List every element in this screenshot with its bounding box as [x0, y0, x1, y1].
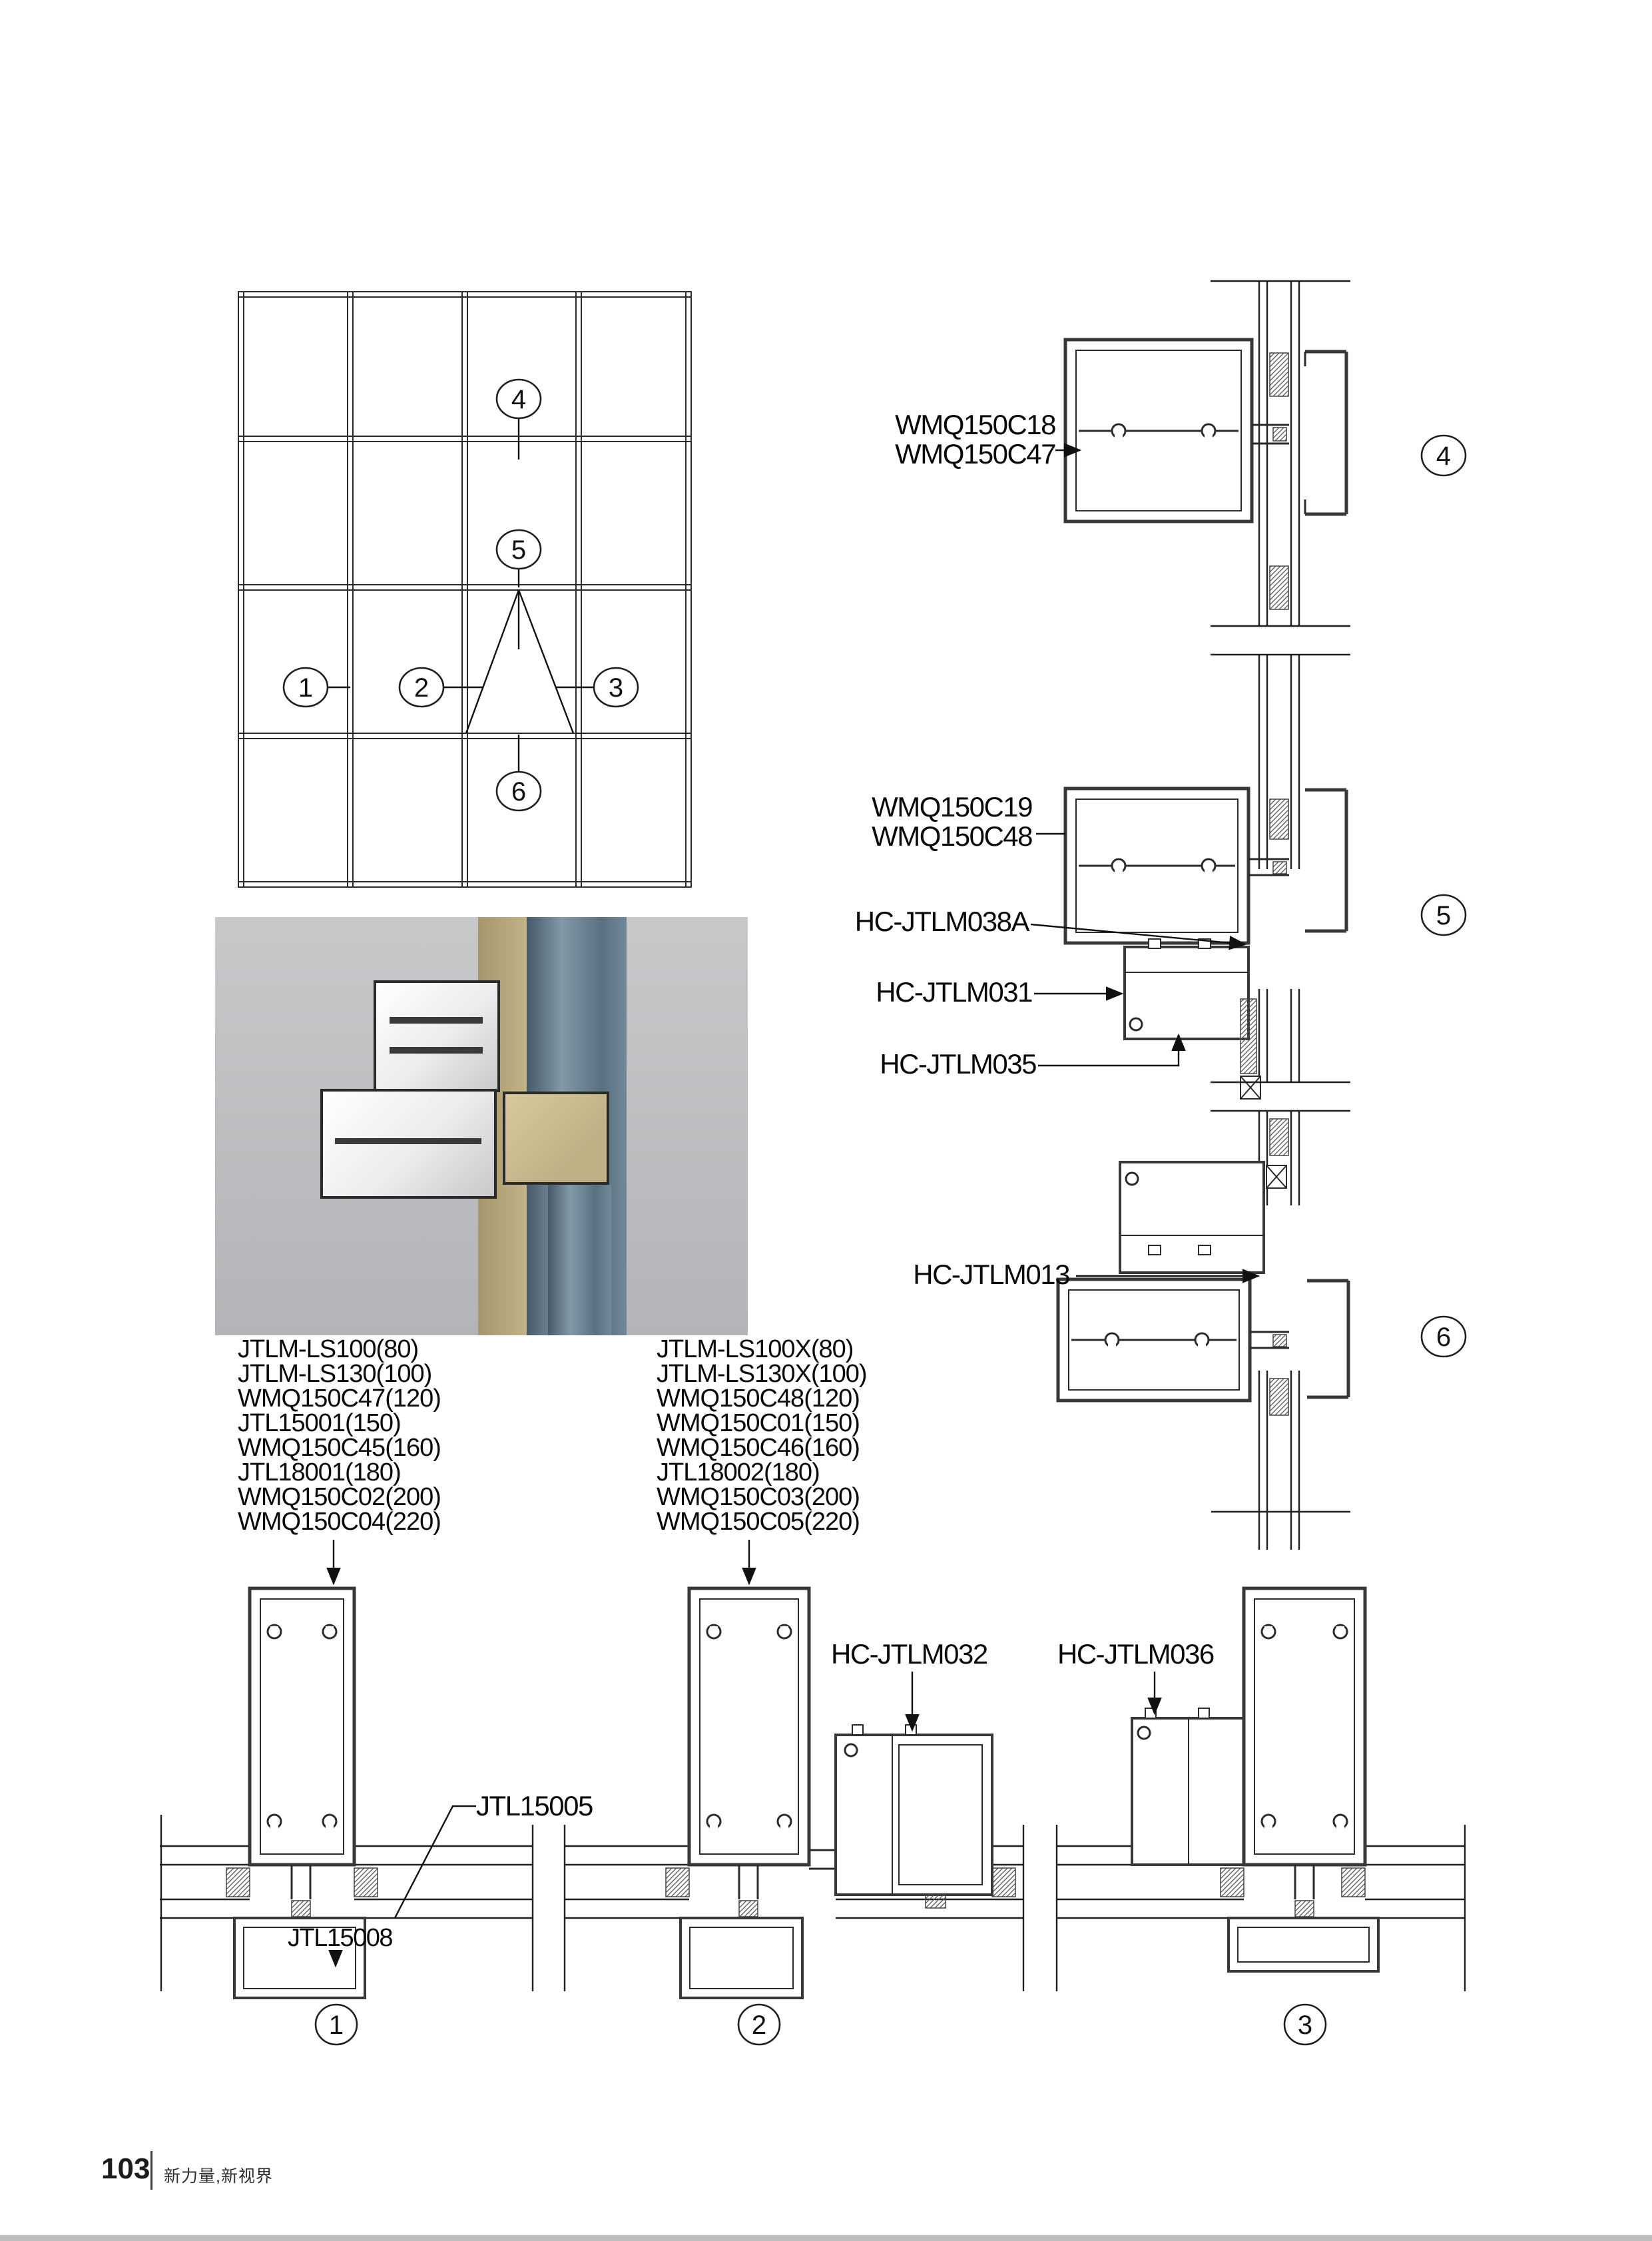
vent-frame-profile: [1120, 1162, 1286, 1273]
parts-list-item: WMQ150C01(150): [657, 1411, 867, 1436]
label-jtl15008: JTL15008: [288, 1923, 392, 1953]
parts-list-item: JTL15001(150): [238, 1411, 441, 1436]
parts-list-item: JTLM-LS100(80): [238, 1337, 441, 1362]
render-glass-lower: [548, 1185, 611, 1335]
bottom-cover-profile: [1229, 1918, 1378, 1971]
glass-unit: [1259, 281, 1299, 626]
render-profile-slot: [390, 1047, 483, 1054]
parts-list-item: WMQ150C48(120): [657, 1387, 867, 1411]
page-edge-bar: [0, 2235, 1652, 2241]
elevation-grid: [238, 292, 691, 887]
render-profile-web: [335, 1138, 481, 1144]
transom-profile: [1065, 789, 1289, 943]
leader-jtl15005: [395, 1806, 476, 1918]
footer-divider: [150, 2151, 152, 2190]
label-jtl15005: JTL15005: [476, 1791, 593, 1821]
label-hc-jtlm032: HC-JTLM032: [831, 1640, 987, 1669]
glass-unit-lower: [1259, 1371, 1299, 1550]
section-callout-5: 5: [1422, 895, 1466, 935]
vent-frame-profile: [1132, 1708, 1245, 1865]
section-callout-2: 2: [738, 2005, 780, 2045]
elevation-callout-leaders: [328, 418, 594, 772]
label-hc-jtlm038a: HC-JTLM038A: [786, 907, 1029, 936]
vertical-sections-drawing: 4: [1019, 273, 1518, 1558]
section-callout-4: 4: [1422, 436, 1466, 476]
svg-text:6: 6: [1436, 1323, 1451, 1352]
transom-profile: [1065, 340, 1289, 521]
vent-opening-symbol: [466, 590, 573, 733]
svg-text:2: 2: [414, 673, 429, 703]
cover-cap-profile: [1307, 1281, 1348, 1397]
parts-list-item: WMQ150C46(160): [657, 1436, 867, 1460]
label-wmq150c19: WMQ150C19 WMQ150C48: [832, 793, 1032, 851]
svg-text:1: 1: [329, 2011, 344, 2040]
callout-circle-2: 2: [400, 668, 443, 707]
cover-cap-profile: [1305, 790, 1346, 931]
section-6-detail: [1058, 1111, 1350, 1550]
label-hc-jtlm035: HC-JTLM035: [796, 1050, 1036, 1079]
horizontal-sections-drawing: 1 2 3: [160, 1532, 1492, 2051]
svg-text:6: 6: [511, 777, 526, 806]
svg-text:5: 5: [1436, 901, 1451, 930]
callout-circle-1: 1: [284, 668, 328, 707]
callout-circle-6: 6: [497, 772, 541, 810]
parts-list-item: JTL18002(180): [657, 1460, 867, 1485]
callout-circle-5: 5: [497, 530, 541, 569]
parts-list-item: WMQ150C47(120): [238, 1387, 441, 1411]
page-number: 103: [101, 2152, 150, 2186]
vent-frame-profile: [1125, 939, 1248, 1039]
parts-list-item: WMQ150C04(220): [238, 1510, 441, 1534]
parts-list-item: JTLM-LS130X(100): [657, 1362, 867, 1387]
section-callout-3: 3: [1284, 2005, 1326, 2045]
parts-list-item: WMQ150C05(220): [657, 1510, 867, 1534]
parts-list-item: JTLM-LS100X(80): [657, 1337, 867, 1362]
svg-text:1: 1: [298, 673, 313, 703]
render-3d-image: [215, 917, 748, 1335]
bottom-cover-profile: [681, 1918, 802, 1998]
transom-profile: [1058, 1279, 1289, 1401]
svg-text:2: 2: [752, 2011, 766, 2040]
callout-circle-3: 3: [594, 668, 638, 707]
render-profile-upper: [374, 980, 500, 1092]
callout-circle-4: 4: [497, 380, 541, 418]
parts-list-item: WMQ150C03(200): [657, 1485, 867, 1510]
glass-unit: [1259, 655, 1299, 869]
svg-text:3: 3: [1298, 2011, 1312, 2040]
parts-list-item: WMQ150C45(160): [238, 1436, 441, 1460]
parts-list-left: JTLM-LS100(80) JTLM-LS130(100) WMQ150C47…: [238, 1337, 441, 1534]
catalog-page: 4 5 1 2 3 6: [0, 0, 1652, 2241]
section-5-detail: [1065, 655, 1346, 1099]
section-callout-1: 1: [316, 2005, 357, 2045]
section-4-detail: [1065, 281, 1350, 626]
footer-tagline: 新力量,新视界: [164, 2163, 273, 2187]
section-callout-6: 6: [1422, 1317, 1466, 1357]
parts-list-item: JTLM-LS130(100): [238, 1362, 441, 1387]
render-profile-slot: [390, 1017, 483, 1024]
elevation-drawing: 4 5 1 2 3 6: [236, 290, 693, 889]
label-hc-jtlm031: HC-JTLM031: [792, 978, 1032, 1007]
render-cover-cap: [503, 1092, 609, 1185]
vent-frame-profile: [836, 1725, 992, 1908]
svg-text:5: 5: [511, 535, 526, 565]
cover-cap-profile: [1305, 352, 1346, 514]
svg-text:4: 4: [1436, 442, 1451, 471]
callout-number: 4: [511, 385, 526, 414]
label-hc-jtlm013: HC-JTLM013: [879, 1260, 1069, 1289]
inner-pane: [160, 1899, 1465, 1918]
parts-list-item: JTL18001(180): [238, 1460, 441, 1485]
svg-text:3: 3: [609, 673, 623, 703]
parts-list-item: WMQ150C02(200): [238, 1485, 441, 1510]
label-hc-jtlm036: HC-JTLM036: [1057, 1640, 1214, 1669]
parts-list-right: JTLM-LS100X(80) JTLM-LS130X(100) WMQ150C…: [657, 1337, 867, 1534]
label-wmq150c18: WMQ150C18 WMQ150C47: [886, 410, 1055, 469]
